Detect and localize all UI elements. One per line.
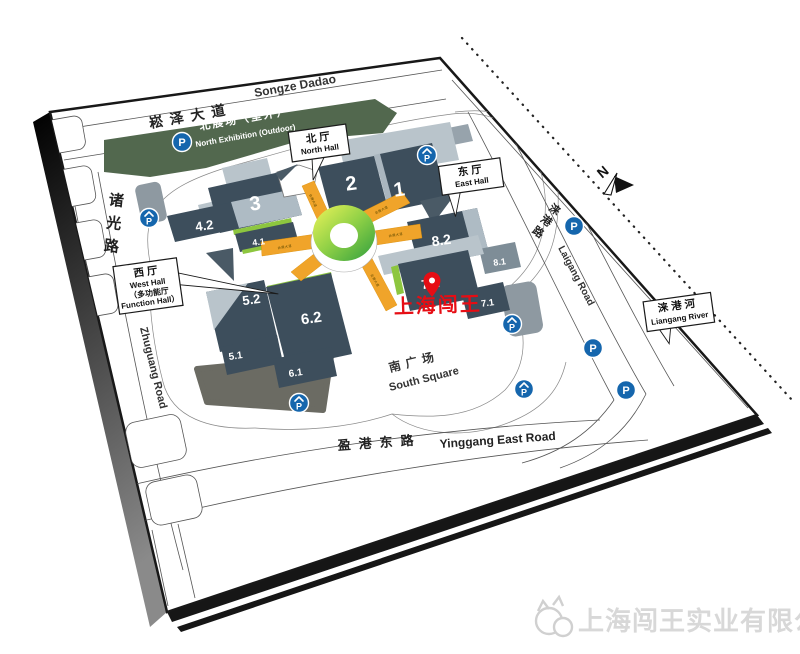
hall-61-label: 6.1	[288, 367, 304, 380]
hall-42-label: 4.2	[194, 217, 214, 234]
parking-entrance-icon: P	[140, 209, 159, 228]
svg-text:P: P	[424, 154, 430, 164]
compass: N	[594, 162, 634, 195]
footer: 上海闯王实业有限公司	[536, 597, 800, 636]
hall-82-label: 8.2	[431, 231, 453, 250]
svg-text:P: P	[146, 217, 152, 227]
svg-text:P: P	[570, 221, 577, 233]
parking-icon: P	[565, 217, 584, 236]
venue-map-page: 会展大道 会展大道 会展大道 会展大道 会展大道 3 2 1 4.2 4.1 5…	[0, 0, 800, 654]
svg-text:P: P	[178, 137, 185, 149]
svg-text:P: P	[589, 343, 596, 355]
parking-entrance-icon: P	[515, 380, 534, 399]
map-canvas: 会展大道 会展大道 会展大道 会展大道 会展大道 3 2 1 4.2 4.1 5…	[0, 0, 800, 654]
hall-41-label: 4.1	[252, 236, 266, 248]
parking-icon: P	[617, 381, 636, 400]
parking-icon: P	[173, 133, 192, 152]
svg-text:P: P	[509, 323, 515, 333]
hall-71-label: 7.1	[480, 297, 495, 310]
parking-entrance-icon: P	[418, 146, 437, 165]
svg-text:P: P	[521, 388, 527, 398]
hall-81-label: 8.1	[493, 256, 507, 268]
compass-arrow-icon	[614, 176, 634, 193]
hall-51-label: 5.1	[228, 350, 244, 363]
map-pin-dot	[429, 278, 435, 284]
parking-icon: P	[584, 339, 603, 358]
company-logo-icon	[536, 597, 572, 636]
hall-62-label: 6.2	[300, 309, 323, 329]
svg-text:P: P	[296, 402, 302, 412]
hall-52-label: 5.2	[241, 291, 261, 308]
company-name: 上海闯王实业有限公司	[578, 606, 800, 636]
svg-text:P: P	[622, 385, 629, 397]
parking-entrance-icon: P	[503, 315, 522, 334]
compass-n-label: N	[594, 162, 612, 181]
parking-entrance-icon: P	[290, 394, 309, 413]
watermark-text: 上海闯王	[393, 291, 482, 318]
